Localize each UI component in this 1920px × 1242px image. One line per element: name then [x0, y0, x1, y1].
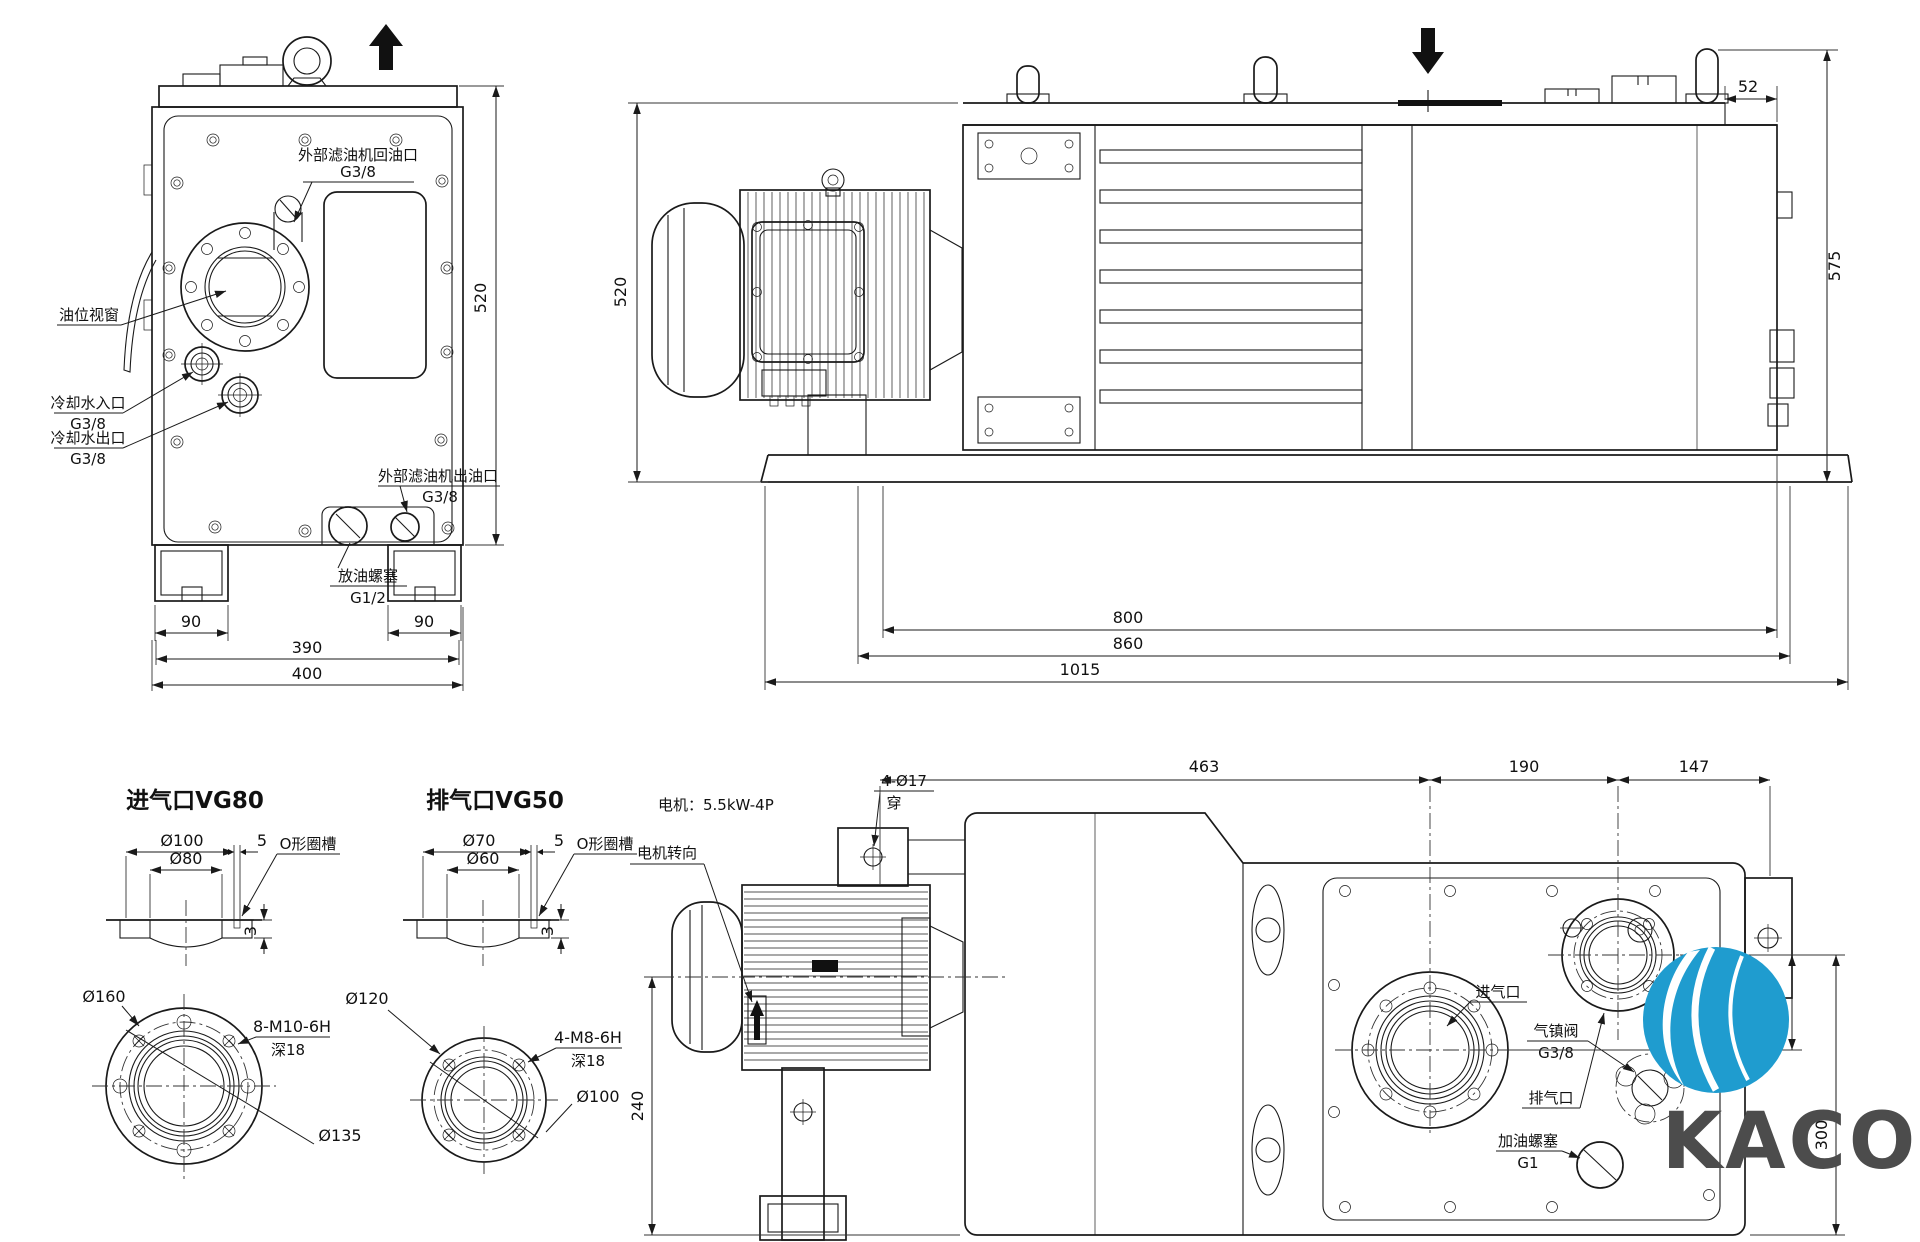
inlet-section-detail: 进气口VG80 Ø100 Ø80 5 O形圈槽 3 [82, 787, 361, 1180]
inlet-groove-depth: 3 [241, 926, 260, 936]
dim-463: 463 [1189, 757, 1220, 776]
down-arrow-icon [1412, 28, 1444, 74]
top-plugs [1545, 76, 1676, 103]
oil-fill-plug [1577, 1142, 1623, 1188]
dim-foot-left: 90 [181, 612, 201, 631]
ballast-size: G3/8 [1538, 1044, 1574, 1062]
top-labels: 电机：5.5kW-4P 4-Ø17 穿 电机转向 进气口 排气口 气镇阀 G3/… [630, 772, 1634, 1172]
ballast-label: 气镇阀 [1533, 1022, 1578, 1040]
front-feet [155, 545, 461, 601]
motor-label: 电机：5.5kW-4P [658, 796, 774, 814]
filter-out-size: G3/8 [422, 488, 458, 506]
dim-base-length: 860 [1113, 634, 1144, 653]
cooling-water-ports [181, 343, 262, 417]
exhaust-label: 排气口 [1528, 1089, 1573, 1107]
inlet-pcd: Ø135 [318, 1126, 361, 1145]
exhaust-flange-face: Ø120 4-M8-6H 深18 Ø100 [345, 989, 622, 1174]
inlet-oring-label: O形圈槽 [280, 835, 337, 853]
logo-text: KACO [1662, 1097, 1918, 1187]
drain-plug-size: G1/2 [350, 589, 386, 607]
inlet-groove-offset: 5 [257, 831, 267, 850]
front-labels: 外部滤油机回油口 G3/8 油位视窗 冷却水入口 G3/8 冷却水出口 G3/8… [50, 146, 500, 607]
dim-body-width: 390 [292, 638, 323, 657]
exhaust-flange-dia: Ø120 [345, 989, 388, 1008]
oil-return-port [274, 196, 302, 250]
oil-sight-label: 油位视窗 [59, 306, 119, 324]
cooling-out-label: 冷却水出口 [50, 429, 125, 447]
exhaust-outer-dia: Ø70 [463, 831, 496, 850]
dim-147: 147 [1679, 757, 1710, 776]
exhaust-section-title: 排气口VG50 [426, 787, 564, 814]
dim-mount-length: 800 [1113, 608, 1144, 627]
inlet-label: 进气口 [1475, 983, 1520, 1001]
mount-holes-label2: 穿 [886, 794, 901, 812]
cooling-out-size: G3/8 [70, 450, 106, 468]
inlet-outer-dia: Ø100 [160, 831, 203, 850]
side-base [761, 455, 1852, 482]
side-motor [652, 169, 962, 455]
dim-190: 190 [1509, 757, 1540, 776]
rotation-arrow-icon [750, 1000, 764, 1040]
inlet-bolt-spec: 8-M10-6H [253, 1017, 331, 1036]
exhaust-oring-label: O形圈槽 [577, 835, 634, 853]
inlet-flange-face: Ø160 8-M10-6H 深18 Ø135 [82, 987, 361, 1180]
exhaust-section-detail: 排气口VG50 Ø70 Ø60 5 O形圈槽 3 [345, 787, 637, 1174]
sight-glass-flange [181, 223, 309, 351]
front-view: 外部滤油机回油口 G3/8 油位视窗 冷却水入口 G3/8 冷却水出口 G3/8… [50, 24, 504, 691]
cooling-fins [1100, 150, 1362, 403]
top-feet [760, 828, 965, 1240]
mount-holes-label: 4-Ø17 [881, 772, 927, 790]
drain-plug-label: 放油螺塞 [338, 567, 398, 585]
exhaust-groove-offset: 5 [554, 831, 564, 850]
return-port-size: G3/8 [340, 163, 376, 181]
dim-foot-right: 90 [414, 612, 434, 631]
inlet-bolt-depth: 深18 [271, 1041, 305, 1059]
nameplate-window [324, 192, 426, 378]
exhaust-bolt-spec: 4-M8-6H [554, 1028, 622, 1047]
cooling-in-label: 冷却水入口 [50, 394, 125, 412]
filter-out-label: 外部滤油机出油口 [378, 467, 498, 485]
dim-front-height: 520 [471, 283, 490, 314]
dim-side-height: 520 [611, 277, 630, 308]
side-view: 52 575 520 800 860 1015 [611, 28, 1852, 690]
drawing-canvas: 外部滤油机回油口 G3/8 油位视窗 冷却水入口 G3/8 冷却水出口 G3/8… [0, 0, 1920, 1242]
return-port-label: 外部滤油机回油口 [298, 146, 418, 164]
inlet-section-title: 进气口VG80 [126, 787, 264, 814]
exhaust-bolt-depth: 深18 [571, 1052, 605, 1070]
exhaust-groove-depth: 3 [538, 926, 557, 936]
dim-top-inset: 52 [1738, 77, 1758, 96]
dim-overall-length: 1015 [1060, 660, 1101, 679]
eyebolt-slots [1252, 885, 1284, 1195]
dim-240: 240 [628, 1091, 647, 1122]
dim-overall-width: 400 [292, 664, 323, 683]
exhaust-pcd: Ø100 [576, 1087, 619, 1106]
brand-logo: KACO [1643, 947, 1918, 1187]
oil-fill-size: G1 [1517, 1154, 1538, 1172]
exhaust-bore-dia: Ø60 [467, 849, 500, 868]
top-motor [658, 885, 1005, 1070]
motor-rotation-label: 电机转向 [637, 844, 697, 862]
dim-overall-height: 575 [1825, 251, 1844, 282]
drain-plug-boss [322, 507, 434, 545]
inlet-bore-dia: Ø80 [170, 849, 203, 868]
oil-fill-label: 加油螺塞 [1498, 1132, 1558, 1150]
up-arrow-icon [369, 24, 403, 70]
inlet-flange-dia: Ø160 [82, 987, 125, 1006]
